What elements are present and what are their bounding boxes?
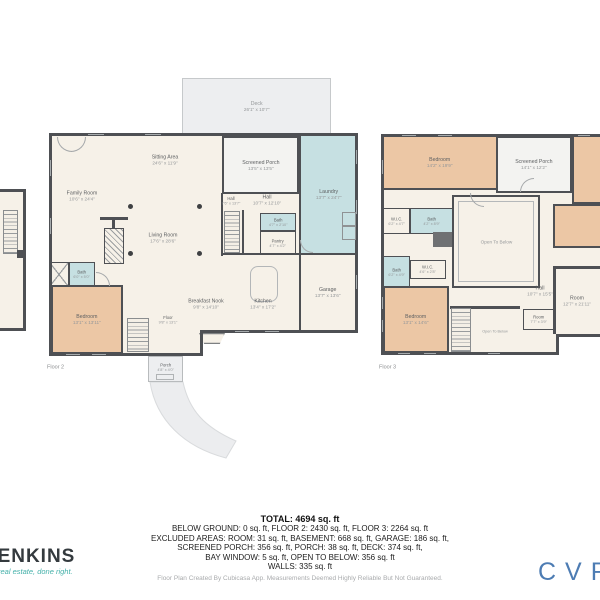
porch-step	[156, 374, 174, 380]
window	[578, 135, 590, 137]
room-bath-small-f2: Bath 4'7" x 2'10"	[260, 213, 296, 231]
room-dims: 14'2" x 19'9"	[427, 162, 453, 167]
room-name: Pantry	[272, 239, 284, 244]
room-name: Bath	[392, 268, 401, 273]
wall	[556, 334, 600, 337]
summary-line: BAY WINDOW: 5 sq. ft, OPEN TO BELOW: 356…	[0, 553, 600, 563]
disclaimer-text: Floor Plan Created By Cubicasa App. Meas…	[0, 575, 600, 582]
kitchen-island	[250, 266, 278, 302]
room-name: Bath	[427, 217, 436, 222]
summary-line: BELOW GROUND: 0 sq. ft, FLOOR 2: 2430 sq…	[0, 524, 600, 534]
summary-line: EXCLUDED AREAS: ROOM: 31 sq. ft, BASEMEN…	[0, 534, 600, 544]
room-dims: 24'6" x 11'9"	[152, 160, 179, 165]
room-orange-right-top-f3	[572, 136, 600, 204]
agency-name: JENKINS	[0, 547, 75, 567]
room-deck: Deck 26'1" x 10'7"	[182, 78, 331, 134]
plan-label-floor2: Floor 2	[47, 364, 64, 370]
room-small-f3: Room 7'7" x 3'9"	[523, 309, 554, 330]
room-label-bedroom-f2: Bedroom 13'1" x 13'11"	[73, 314, 101, 325]
room-bath-left-f2: Bath 6'0" x 5'0"	[69, 262, 95, 287]
area-summary: TOTAL: 4694 sq. ft BELOW GROUND: 0 sq. f…	[0, 514, 600, 572]
room-name: Open To Below	[480, 239, 512, 244]
wall	[17, 250, 24, 258]
room-dims: 26'1" x 10'7"	[244, 106, 270, 111]
room-orange-right-mid-f3	[553, 204, 600, 248]
room-label-family-room: Family Room 10'6" x 24'4"	[67, 191, 98, 202]
room-label-bath-left-f2: Bath 6'0" x 5'0"	[74, 270, 91, 279]
window	[438, 135, 452, 137]
room-dims: 14'1" x 12'2"	[521, 165, 547, 170]
wall	[200, 330, 358, 333]
column-marker	[197, 204, 202, 209]
room-screened-porch-f3: Screened Porch 14'1" x 12'2"	[496, 136, 572, 193]
room-label-open-to-below: Open To Below	[480, 239, 512, 244]
room-label-screened-porch-f3: Screened Porch 14'1" x 12'2"	[515, 159, 552, 170]
wall	[553, 266, 556, 334]
agency-tagline: real estate, done right.	[0, 567, 75, 576]
room-label-room-small-f3: Room 7'7" x 3'9"	[530, 315, 547, 324]
room-dims: 10'7" x 15'5"	[527, 291, 553, 296]
column-marker	[128, 251, 133, 256]
room-dims: 4'7" x 2'10"	[269, 222, 288, 226]
window	[265, 331, 279, 333]
room-dims: 6'0" x 5'0"	[74, 275, 91, 279]
plan-label-floor3: Floor 3	[379, 364, 396, 370]
room-label-living-room: Living Room 17'6" x 28'6"	[149, 233, 178, 244]
room-label-room-right-f3: Room 12'7" x 21'11"	[563, 296, 591, 307]
wall	[242, 210, 244, 255]
room-bedroom-bottom-f3: Bedroom 13'1" x 14'6"	[383, 286, 449, 353]
window	[145, 134, 161, 136]
wall	[556, 334, 559, 355]
room-dims: 7'7" x 3'9"	[530, 320, 547, 324]
room-dims: 7'6" x 13'7"	[222, 201, 241, 205]
room-pantry: Pantry 4'7" x 4'2"	[260, 231, 296, 255]
room-bath-mid-f3: Bath 4'2" x 8'9"	[410, 208, 453, 234]
window	[356, 150, 358, 164]
wall	[553, 266, 600, 269]
room-label-kitchen: Kitchen 13'4" x 17'2"	[250, 299, 276, 310]
window	[382, 320, 384, 332]
room-label-hall-f2: Hall 10'7" x 12'10"	[253, 195, 281, 206]
window	[402, 135, 416, 137]
room-label-wic-top-f3: W.I.C. 6'2" x 4'7"	[388, 217, 405, 226]
stairs	[127, 318, 149, 352]
room-name: Open To Below	[482, 329, 508, 333]
room-label-hall-stairs-f2: Hall 7'6" x 13'7"	[222, 197, 241, 206]
room-name: W.I.C.	[391, 217, 402, 222]
shower-block	[433, 232, 452, 247]
closet-hatched	[49, 262, 69, 287]
room-dims: 4'6" x 2'8"	[420, 270, 437, 274]
room-dims: 9'8" x 13'1"	[159, 320, 178, 324]
room-dims: 6'2" x 4'7"	[388, 221, 405, 225]
window	[398, 353, 410, 355]
room-name: Deck	[251, 101, 263, 107]
window	[50, 218, 52, 234]
room-dims: 9'8" x 14'10"	[188, 304, 224, 309]
agency-logo: JENKINS real estate, done right.	[0, 547, 75, 576]
window	[92, 354, 106, 356]
room-dims: 6'2" x 4'9"	[388, 272, 405, 276]
room-dims: 13'1" x 13'11"	[73, 320, 101, 325]
room-label-bath-small-f2: Bath 4'7" x 2'10"	[269, 218, 288, 227]
total-area-line: TOTAL: 4694 sq. ft	[0, 514, 600, 524]
room-label-pantry: Pantry 4'7" x 4'2"	[270, 239, 287, 248]
room-label-bedroom-top-f3: Bedroom 14'2" x 19'9"	[427, 157, 453, 168]
room-dims: 10'6" x 24'4"	[67, 196, 98, 201]
room-dims: 10'7" x 12'10"	[253, 200, 281, 205]
room-wic-top-f3: W.I.C. 6'2" x 4'7"	[383, 208, 410, 234]
room-dims: 13'4" x 17'2"	[250, 304, 276, 309]
room-dims: 13'7" x 13'6"	[315, 293, 341, 298]
room-label-breakfast-nook: Breakfast Nook 9'8" x 14'10"	[188, 299, 224, 310]
open-to-below-area: Open To Below	[452, 195, 540, 288]
room-label-sitting-area: Sitting Area 24'6" x 11'9"	[152, 155, 179, 166]
room-label-screened-porch-f2: Screened Porch 13'5" x 13'5"	[242, 160, 279, 171]
room-bedroom-top-f3: Bedroom 14'2" x 19'9"	[383, 136, 498, 190]
stairs	[451, 308, 471, 352]
room-bedroom-f2: Bedroom 13'1" x 13'11"	[51, 285, 123, 354]
room-label-bedroom-bottom-f3: Bedroom 13'1" x 14'6"	[403, 314, 429, 325]
summary-line: SCREENED PORCH: 356 sq. ft, PORCH: 38 sq…	[0, 543, 600, 553]
window	[235, 331, 249, 333]
column-marker	[197, 251, 202, 256]
cvr-logo: CVR	[538, 558, 600, 587]
room-dims: 17'6" x 28'6"	[149, 238, 178, 243]
room-dims: 4'8" x 4'0"	[157, 368, 174, 372]
room-label-laundry: Laundry 13'7" x 24'7"	[316, 189, 342, 200]
appliance-icon	[342, 212, 356, 226]
window	[66, 354, 80, 356]
room-label-open-to-below-stairs: Open To Below	[482, 329, 508, 333]
room-dims: 4'2" x 8'9"	[423, 221, 440, 225]
room-label-wic-small-f3: W.I.C. 4'6" x 2'8"	[420, 265, 437, 274]
window	[382, 160, 384, 174]
room-label-bath-left-f3: Bath 6'2" x 4'9"	[388, 268, 405, 277]
room-screened-porch-f2: Screened Porch 13'5" x 13'5"	[222, 136, 299, 194]
room-dims: 4'7" x 4'2"	[270, 243, 287, 247]
window	[88, 134, 104, 136]
room-label-hall-f3: Hall 10'7" x 15'5"	[527, 286, 553, 297]
room-garage: Garage 13'7" x 13'6"	[299, 253, 357, 332]
room-dims: 13'5" x 13'5"	[248, 165, 274, 170]
wall	[221, 253, 301, 255]
room-name: Bath	[274, 218, 283, 223]
window	[488, 353, 500, 355]
room-bath-left-f3: Bath 6'2" x 4'9"	[383, 256, 410, 288]
summary-line: WALLS: 335 sq. ft	[0, 562, 600, 572]
room-label-deck: Deck 26'1" x 10'7"	[244, 101, 270, 112]
column-marker	[128, 204, 133, 209]
fireplace	[104, 228, 124, 264]
room-label-porch: Porch 4'8" x 4'0"	[157, 363, 174, 372]
window	[382, 297, 384, 309]
room-name: Bedroom	[429, 157, 450, 163]
stairs	[224, 211, 240, 253]
window	[356, 275, 358, 289]
room-label-bath-mid-f3: Bath 4'2" x 8'9"	[423, 217, 440, 226]
stairs	[3, 210, 18, 254]
window	[424, 353, 436, 355]
room-dims: 12'7" x 21'11"	[563, 301, 591, 306]
window	[50, 160, 52, 176]
floor-plan-page: Deck 26'1" x 10'7" Screened Porch 13'5" …	[0, 0, 600, 600]
room-dims: 13'7" x 24'7"	[316, 195, 342, 200]
room-dims: 13'1" x 14'6"	[403, 320, 429, 325]
room-wic-small-f3: W.I.C. 4'6" x 2'8"	[410, 260, 446, 279]
room-name: Screened Porch	[242, 160, 279, 166]
window	[356, 200, 358, 214]
appliance-icon	[342, 226, 356, 240]
room-label-floor-area: Floor 9'8" x 13'1"	[159, 316, 178, 325]
room-label-garage: Garage 13'7" x 13'6"	[315, 287, 341, 298]
